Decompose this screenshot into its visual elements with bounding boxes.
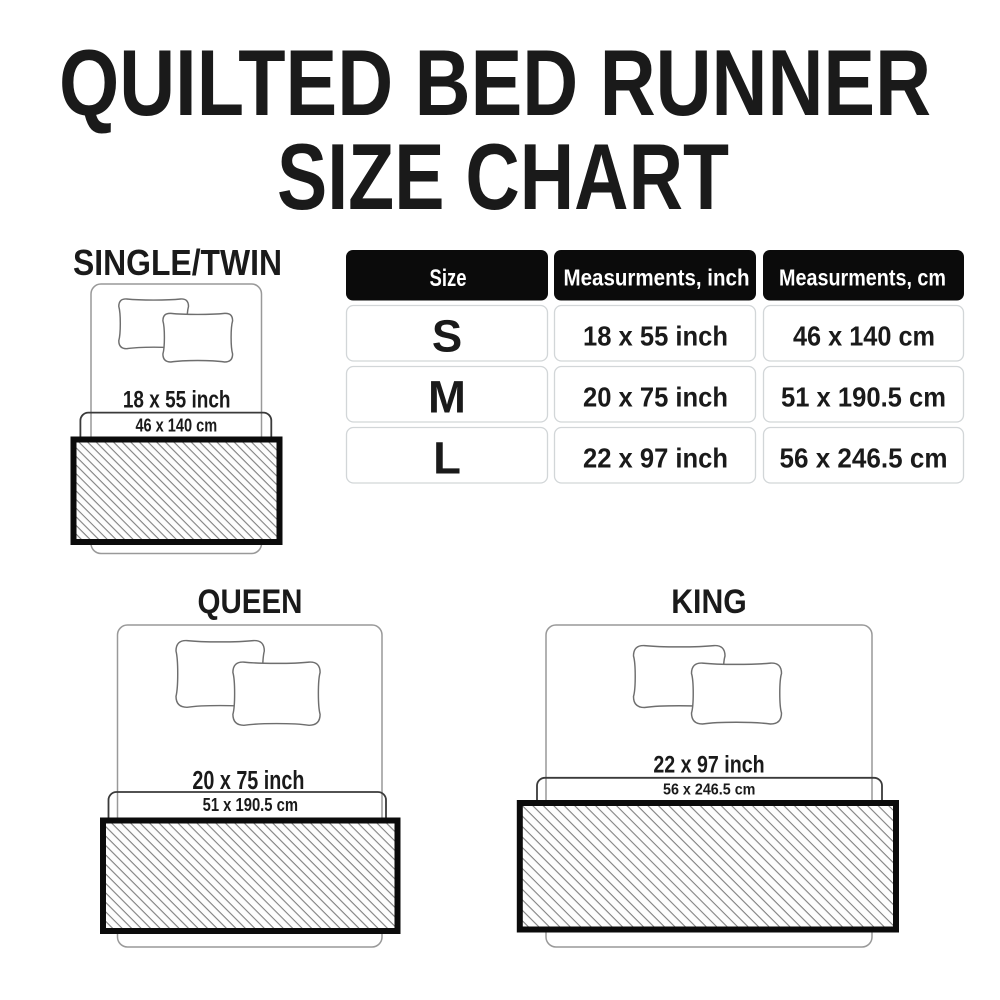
svg-text:46 x 140 cm: 46 x 140 cm bbox=[135, 415, 217, 436]
svg-text:KING: KING bbox=[671, 583, 747, 621]
svg-text:Measurments, inch: Measurments, inch bbox=[564, 265, 750, 291]
svg-text:56 x 246.5 cm: 56 x 246.5 cm bbox=[780, 442, 948, 473]
svg-text:S: S bbox=[432, 311, 462, 362]
svg-text:L: L bbox=[433, 433, 461, 484]
svg-text:51 x 190.5 cm: 51 x 190.5 cm bbox=[203, 794, 298, 815]
svg-text:QUEEN: QUEEN bbox=[198, 583, 303, 621]
svg-text:22 x 97 inch: 22 x 97 inch bbox=[583, 442, 728, 473]
svg-text:20 x 75 inch: 20 x 75 inch bbox=[192, 767, 304, 795]
svg-text:51 x 190.5 cm: 51 x 190.5 cm bbox=[781, 381, 946, 412]
svg-text:46 x 140 cm: 46 x 140 cm bbox=[793, 320, 935, 351]
svg-text:56 x 246.5 cm: 56 x 246.5 cm bbox=[663, 782, 755, 799]
svg-text:22 x 97 inch: 22 x 97 inch bbox=[653, 752, 764, 779]
svg-text:M: M bbox=[428, 372, 466, 423]
svg-text:Size: Size bbox=[430, 265, 467, 292]
svg-text:SINGLE/TWIN: SINGLE/TWIN bbox=[73, 242, 282, 283]
svg-text:20 x 75 inch: 20 x 75 inch bbox=[583, 381, 728, 412]
svg-text:SIZE CHART: SIZE CHART bbox=[277, 124, 729, 229]
svg-text:Measurments, cm: Measurments, cm bbox=[779, 265, 946, 291]
svg-text:QUILTED BED RUNNER: QUILTED BED RUNNER bbox=[59, 30, 931, 135]
svg-text:18 x 55 inch: 18 x 55 inch bbox=[123, 386, 231, 413]
svg-text:18 x 55 inch: 18 x 55 inch bbox=[583, 320, 728, 351]
